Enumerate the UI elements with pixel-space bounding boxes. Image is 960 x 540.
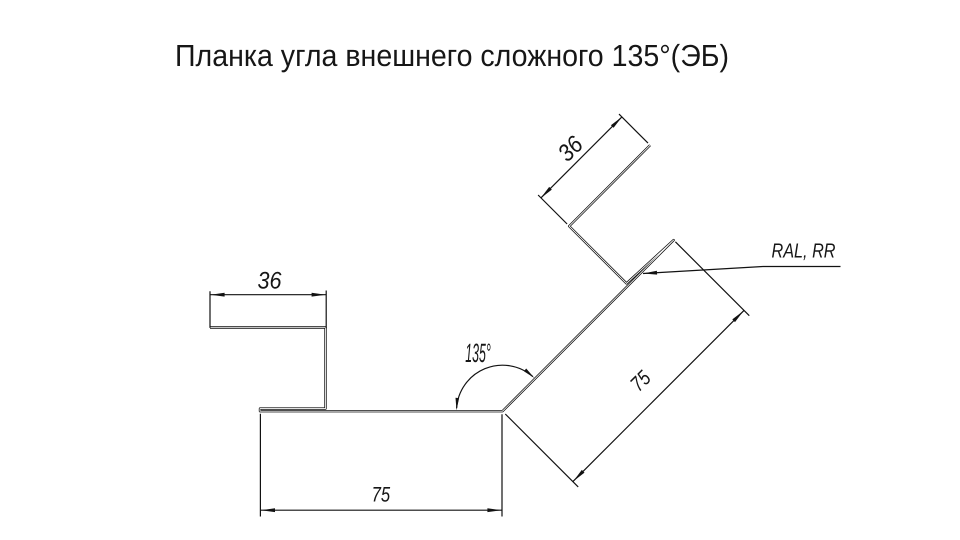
svg-text:36: 36 [553, 131, 589, 167]
svg-text:75: 75 [372, 484, 391, 507]
svg-text:RAL, RR: RAL, RR [772, 241, 836, 263]
svg-text:36: 36 [258, 268, 283, 295]
svg-text:Планка угла внешнего сложного: Планка угла внешнего сложного 135°(ЭБ) [175, 39, 729, 73]
svg-text:75: 75 [626, 367, 656, 397]
svg-text:135°: 135° [465, 338, 491, 368]
